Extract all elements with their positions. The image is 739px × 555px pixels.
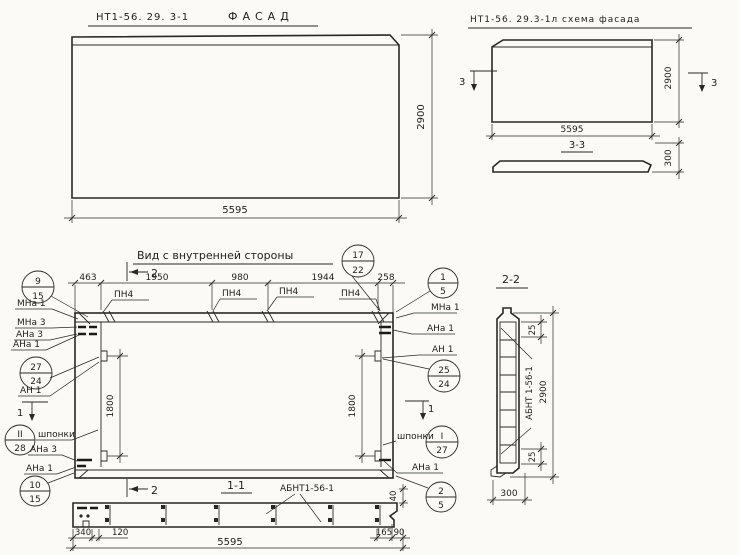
- section-2-2-drawing: 2-2 АБНТ 1-56-1 25 25: [487, 273, 559, 505]
- balloon-27-24: 27 24: [20, 357, 99, 389]
- dim-340-value: 340: [75, 528, 91, 538]
- dim-25-bottom-value: 25: [528, 452, 538, 463]
- pn4-labels: ПН4 ПН4 ПН4 ПН4: [104, 287, 380, 311]
- facade-panel-outline: [72, 35, 399, 198]
- balloon-25-24: 25 24: [383, 359, 460, 392]
- balloon-II-28-top: II: [17, 430, 22, 440]
- balloon-II-28-bottom: 28: [14, 444, 26, 454]
- dim-258: 258: [377, 273, 394, 283]
- dim-300-section-value: 300: [500, 489, 517, 499]
- pn4-label-3: ПН4: [279, 287, 299, 297]
- schema-height-value: 2900: [664, 66, 674, 89]
- drawing-sheet: НТ1-56. 29. 3-1 ФАСАД 5595 2900 НТ1-56. …: [0, 0, 739, 555]
- schema-profile-strip: [493, 161, 651, 172]
- left-1800-value: 1800: [106, 394, 116, 417]
- balloon-17-22: 17 22: [342, 245, 380, 311]
- schema-section-label: 3-3: [569, 140, 585, 151]
- strip-outline: [73, 503, 397, 527]
- dim-90-value: 90: [394, 528, 405, 538]
- dim-165-value: 165: [376, 528, 392, 538]
- dim-1944: 1944: [312, 273, 335, 283]
- section-1-1-part-label: АБНТ1-56-1: [280, 484, 334, 494]
- dim-25-bottom: 25: [521, 442, 547, 471]
- schema-thickness-dim: 300: [652, 137, 684, 179]
- dim-5595-value: 5595: [217, 537, 242, 548]
- left-1800-dim: 1800: [106, 349, 128, 463]
- cut2-mark-bottom: 2: [127, 479, 158, 497]
- facade-height-dim: 2900: [401, 29, 438, 205]
- balloon-10-15-top: 10: [29, 481, 41, 491]
- label-ana1-right: АНа 1: [427, 324, 454, 334]
- section-1-1-drawing: 1-1 АБНТ1-56-1 40: [66, 479, 410, 551]
- right-1800-value: 1800: [348, 394, 358, 417]
- cut1-label-right: 1: [428, 404, 434, 415]
- facade-title-name: ФАСАД: [228, 10, 294, 23]
- keys-left-group: шпонки: [36, 430, 98, 440]
- dim-980: 980: [231, 273, 248, 283]
- balloon-1-5-bottom: 5: [440, 287, 446, 297]
- balloon-27-24-top: 27: [30, 363, 41, 373]
- facade-width-dim: 5595: [64, 200, 407, 223]
- schema-width-dim: 5595: [486, 124, 660, 140]
- label-an1-right: АН 1: [432, 345, 454, 355]
- section-2-2-foot: [491, 466, 506, 477]
- label-ana1-right-bottom: АНа 1: [412, 463, 439, 473]
- dim-25-top-value: 25: [528, 325, 538, 336]
- balloon-2-5-top: 2: [438, 487, 444, 497]
- cut1-mark-right: 1: [405, 401, 434, 420]
- balloon-2-5: 2 5: [396, 476, 456, 512]
- inner-view-drawing: Вид с внутренней стороны 17 22 2: [5, 245, 460, 512]
- pn4-label-2: ПН4: [222, 289, 242, 299]
- label-mna1-left: МНа 1: [17, 299, 46, 309]
- facade-drawing: НТ1-56. 29. 3-1 ФАСАД 5595 2900: [64, 10, 438, 223]
- balloon-9-15-top: 9: [35, 277, 41, 287]
- balloon-I-27: I 27: [426, 426, 458, 458]
- pn4-label-1: ПН4: [114, 290, 134, 300]
- schema-cut-label-left: 3: [459, 77, 465, 88]
- right-rib-tab-top: [375, 351, 381, 361]
- label-ana1-left-bottom: АНа 1: [26, 464, 53, 474]
- label-an1-left: АН 1: [20, 386, 42, 396]
- embedded-plates: [77, 327, 391, 466]
- dim-40-value: 40: [389, 491, 399, 502]
- schema-panel-outline: [492, 40, 652, 122]
- balloon-I-27-top: I: [441, 432, 444, 442]
- left-rib-tab-top: [101, 351, 107, 361]
- label-ana3-left: АНа 3: [16, 330, 43, 340]
- balloon-17-22-top: 17: [352, 251, 363, 261]
- strip-left-notch: [83, 521, 89, 527]
- balloon-25-24-bottom: 24: [438, 380, 450, 390]
- dim-463: 463: [79, 273, 96, 283]
- label-ana1-left: АНа 1: [13, 340, 40, 350]
- facade-height-value: 2900: [416, 104, 427, 129]
- dim-40: 40: [389, 484, 408, 508]
- schema-cut-mark-right: 3: [688, 73, 717, 92]
- schema-thickness-value: 300: [664, 149, 674, 166]
- section-2-2-label: 2-2: [502, 273, 520, 286]
- inner-view-title: Вид с внутренней стороны: [137, 249, 293, 262]
- balloon-10-15-bottom: 15: [29, 495, 40, 505]
- facade-title-code: НТ1-56. 29. 3-1: [96, 12, 189, 23]
- keys-label-left: шпонки: [38, 430, 75, 440]
- dim-1950: 1950: [146, 273, 169, 283]
- strip-dims: 340 120 165 90 5595: [66, 524, 410, 551]
- balloon-I-27-bottom: 27: [436, 446, 447, 456]
- schema-title: НТ1-56. 29.3-1л схема фасада: [470, 15, 640, 25]
- balloon-17-22-bottom: 22: [352, 266, 363, 276]
- strip-channel-symbols: [105, 505, 380, 525]
- cut1-label-left: 1: [17, 408, 23, 419]
- pn4-label-4: ПН4: [341, 289, 361, 299]
- cut1-mark-left: 1: [17, 402, 48, 421]
- dim-120-value: 120: [112, 528, 128, 538]
- schema-cut-label-right: 3: [711, 78, 717, 89]
- engineering-drawing: НТ1-56. 29. 3-1 ФАСАД 5595 2900 НТ1-56. …: [0, 0, 739, 555]
- balloon-10-15: 10 15: [20, 473, 74, 506]
- dim-2900-section-value: 2900: [539, 380, 549, 403]
- schema-height-dim: 2900: [654, 34, 684, 128]
- dim-300-section: 300: [487, 473, 532, 505]
- label-mna3-left: МНа 3: [17, 318, 46, 328]
- schema-drawing: НТ1-56. 29.3-1л схема фасада 3 3 2900: [459, 15, 717, 179]
- balloon-2-5-bottom: 5: [438, 501, 444, 511]
- cut2-label-bottom: 2: [151, 484, 158, 497]
- schema-width-value: 5595: [561, 125, 584, 135]
- label-mna1-right: МНа 1: [431, 303, 460, 313]
- dim-25-top: 25: [521, 315, 547, 344]
- section-2-2-part-label: АБНТ 1-56-1: [525, 366, 535, 420]
- label-ana3-left-bottom: АНа 3: [30, 445, 57, 455]
- section-1-1-label: 1-1: [227, 479, 245, 492]
- right-1800-dim: 1800: [348, 349, 375, 463]
- balloon-1-5-top: 1: [440, 273, 446, 283]
- facade-width-value: 5595: [222, 205, 247, 216]
- left-anchor-labels-bottom: АНа 3 АНа 1: [24, 445, 77, 474]
- balloon-25-24-top: 25: [438, 366, 449, 376]
- left-anchor-labels-top: МНа 1 МНа 3 АНа 3 АНа 1: [11, 299, 79, 350]
- left-rib-tab-bottom: [101, 451, 107, 461]
